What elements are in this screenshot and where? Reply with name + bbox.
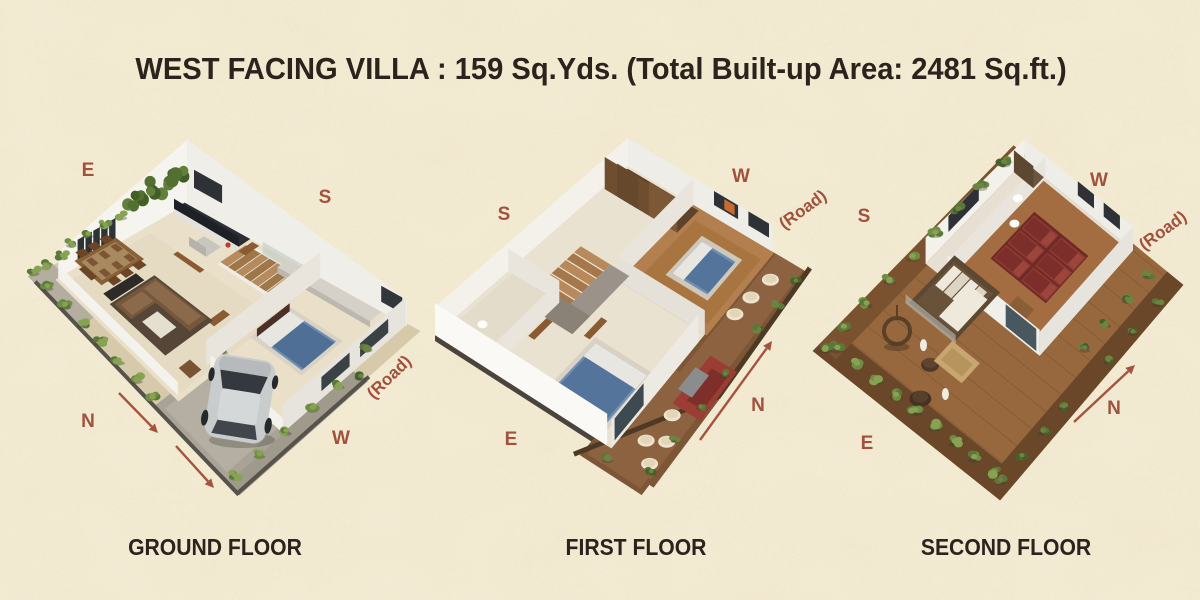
svg-text:FIRST FLOOR: FIRST FLOOR xyxy=(566,534,707,560)
svg-text:N: N xyxy=(1107,398,1121,419)
svg-text:E: E xyxy=(82,160,95,181)
svg-text:SECOND FLOOR: SECOND FLOOR xyxy=(921,534,1091,560)
svg-text:S: S xyxy=(498,204,511,225)
svg-text:S: S xyxy=(319,187,332,208)
svg-text:N: N xyxy=(751,395,765,416)
svg-text:S: S xyxy=(858,206,871,227)
svg-text:N: N xyxy=(81,411,95,432)
svg-text:W: W xyxy=(1090,170,1108,191)
svg-text:GROUND FLOOR: GROUND FLOOR xyxy=(128,534,302,560)
svg-text:WEST FACING VILLA : 159 Sq.Yds: WEST FACING VILLA : 159 Sq.Yds. (Total B… xyxy=(135,52,1066,86)
svg-text:E: E xyxy=(505,429,518,450)
svg-text:E: E xyxy=(861,433,874,454)
svg-text:W: W xyxy=(332,428,350,449)
svg-text:W: W xyxy=(732,166,750,187)
